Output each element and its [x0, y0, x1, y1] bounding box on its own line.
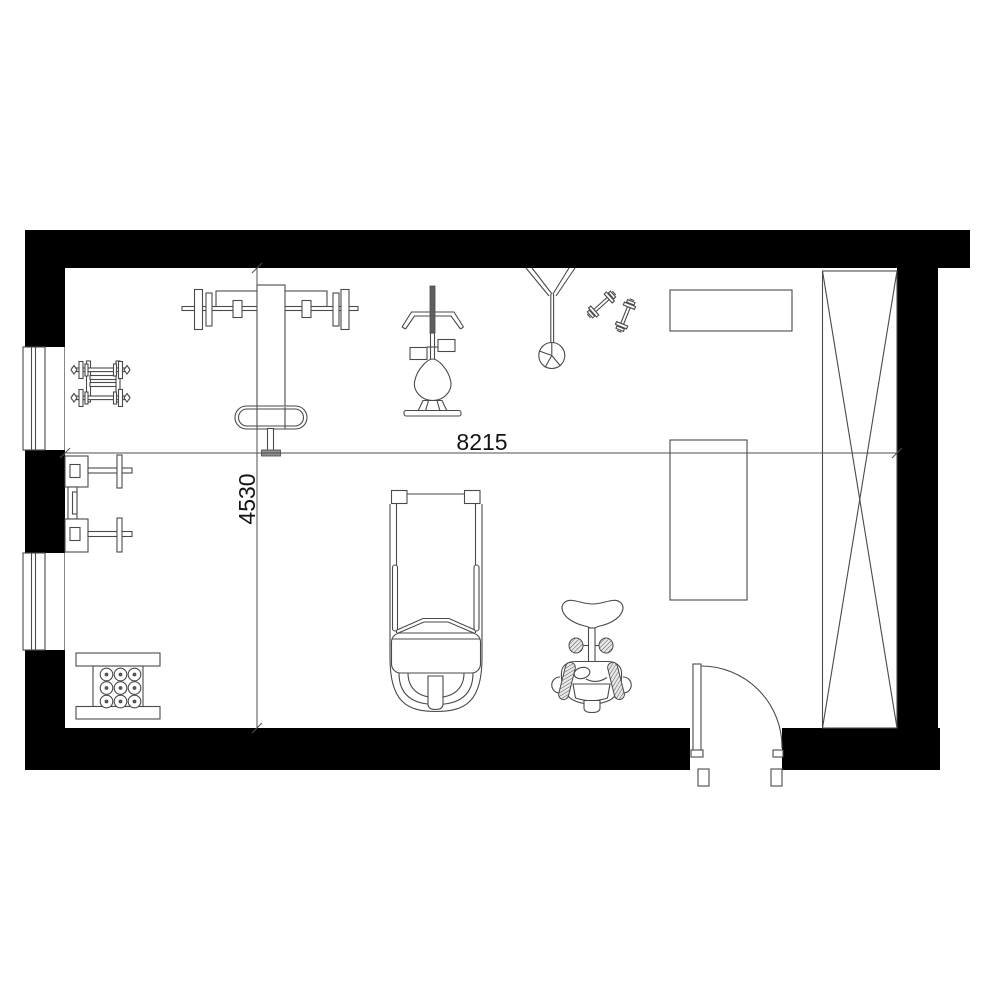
- weight-bench-icon: [670, 440, 747, 600]
- weight-storage-rack-icon: [76, 653, 160, 719]
- window-icon: [23, 553, 65, 650]
- exercise-bike-icon: [552, 600, 631, 712]
- dimension-width-label: 8215: [456, 429, 507, 455]
- dimension-height-label: 4530: [234, 473, 260, 524]
- window-icon: [23, 347, 65, 450]
- left-wall-middle: [25, 450, 65, 553]
- floor-plan: 8215 4530: [0, 0, 1000, 1000]
- walls: [25, 230, 970, 770]
- left-wall-upper: [25, 268, 65, 347]
- punching-bag-icon: [526, 268, 575, 369]
- wall-mounted-unit-icon: [65, 455, 132, 552]
- lat-pulldown-icon: [402, 286, 464, 416]
- bottom-wall-right: [782, 728, 940, 770]
- door-leaf: [693, 664, 701, 752]
- bottom-wall-left: [25, 728, 690, 770]
- bench-press-icon: [182, 285, 358, 456]
- right-wall: [897, 268, 938, 770]
- dumbbell-rack-icon: [71, 361, 130, 407]
- exercise-mat-icon: [670, 290, 792, 331]
- hand-dumbbells-icon: [585, 289, 638, 334]
- treadmill-icon: [390, 491, 482, 712]
- top-wall: [25, 230, 970, 268]
- wardrobe-icon: [823, 271, 898, 728]
- left-wall-lower: [25, 650, 65, 730]
- door-swing-arc: [701, 666, 782, 748]
- door-icon: [691, 664, 783, 786]
